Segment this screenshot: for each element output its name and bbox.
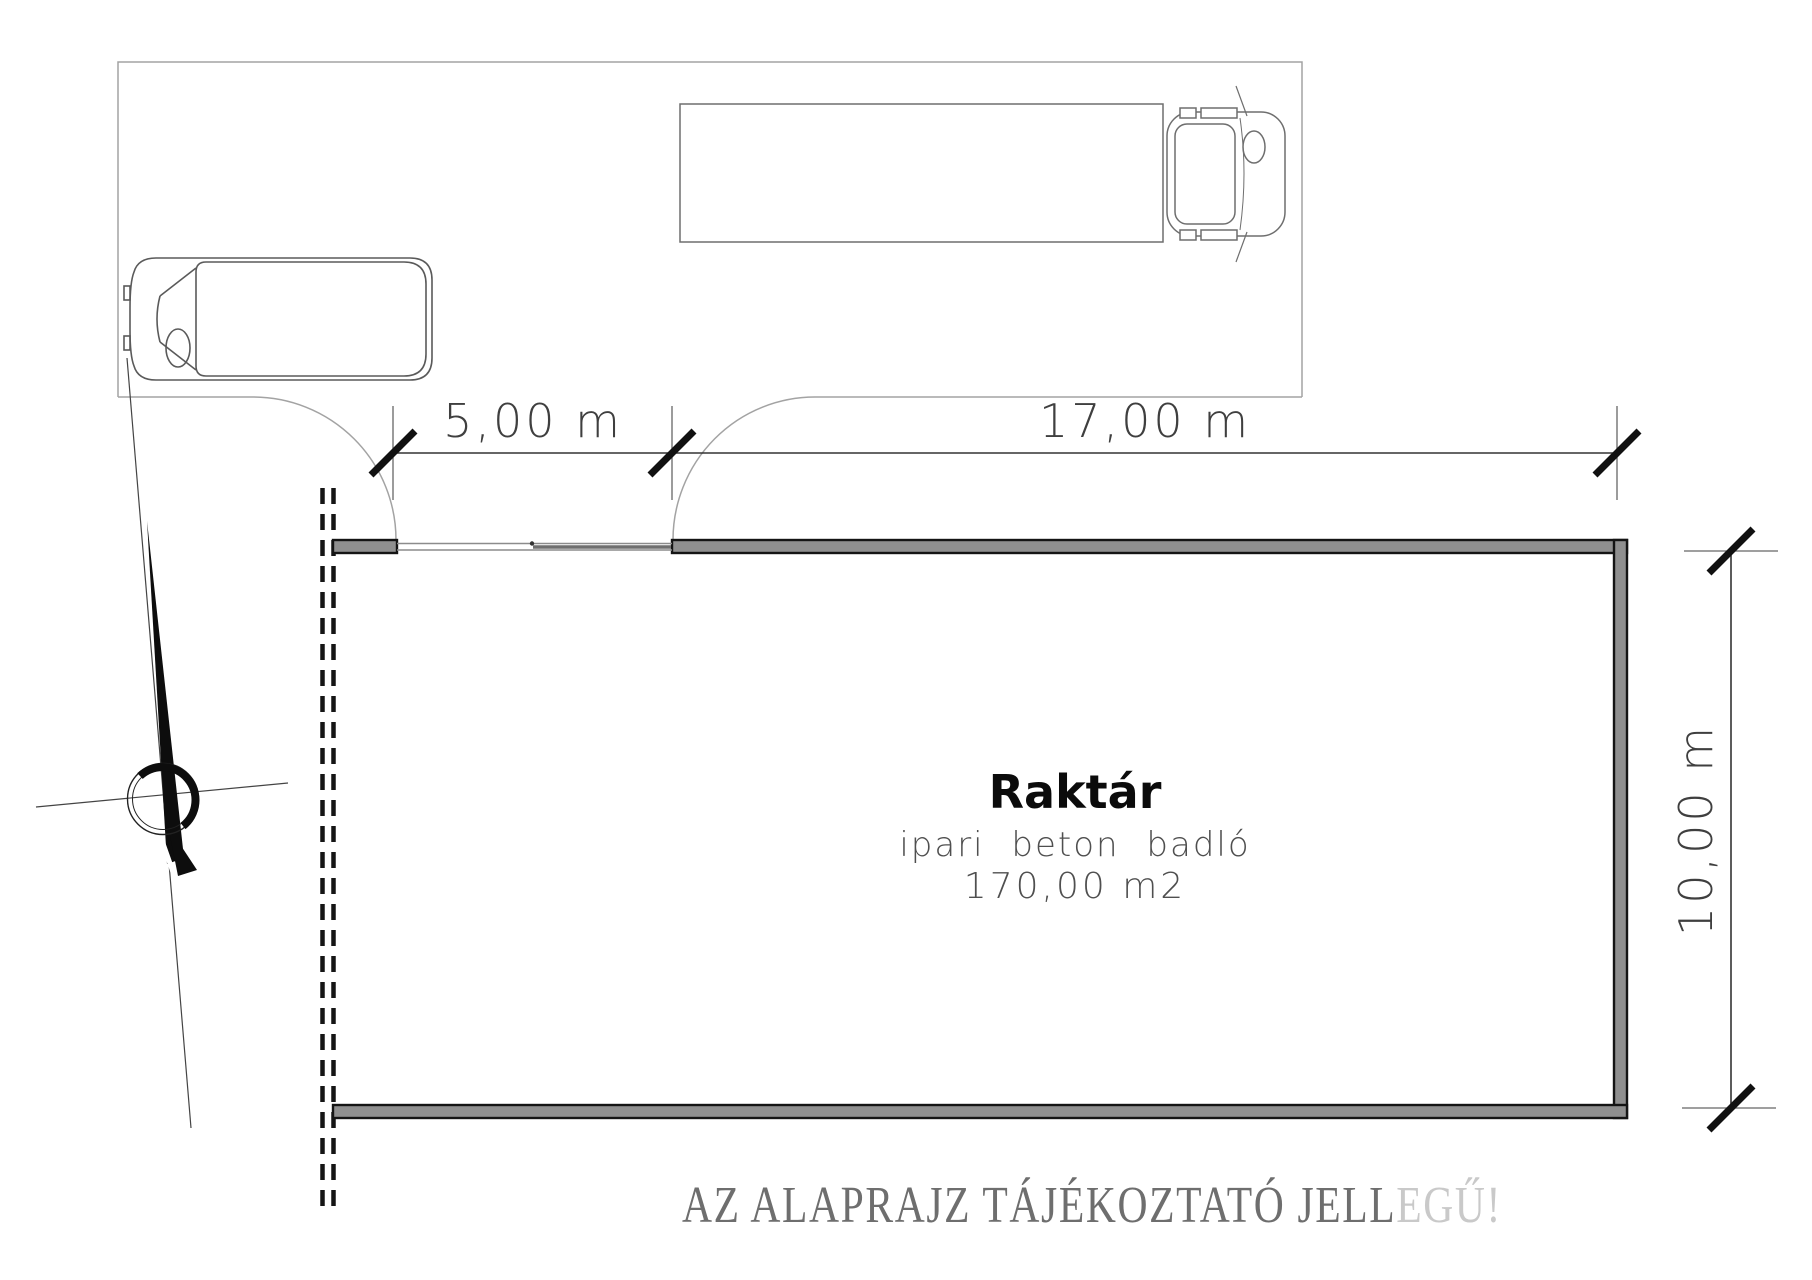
van-bumper-nub-bottom <box>124 336 130 350</box>
dimension-label-hall-depth: 10,00 m <box>1669 724 1723 936</box>
wall-top-left-stub <box>333 540 397 553</box>
truck-cab-body <box>1167 112 1285 236</box>
dimension-label-hall-width: 17,00 m <box>1039 394 1251 448</box>
disclaimer-main-text: AZ ALAPRAJZ TÁJÉKOZTATÓ JELL <box>682 1177 1396 1234</box>
wall-top-main <box>672 540 1627 553</box>
truck-icon <box>680 86 1285 262</box>
room-area-label: 170,00 m2 <box>964 866 1186 907</box>
dimension-extension-lines <box>393 406 1778 1108</box>
room-name-label: Raktár <box>989 765 1162 819</box>
floor-plan-canvas: 5,00 m 17,00 m 10,00 m Raktár ipari beto… <box>0 0 1812 1280</box>
compass-cross-line <box>36 783 288 807</box>
gate-hinge-dot <box>530 541 534 545</box>
disclaimer-text: AZ ALAPRAJZ TÁJÉKOZTATÓ JELLEGŰ! <box>682 1177 1502 1234</box>
north-axis-line <box>127 358 191 1128</box>
wall-right <box>1614 540 1627 1118</box>
drive-path-left-arc <box>118 397 396 540</box>
truck-wheel-bottom-1 <box>1180 230 1196 240</box>
north-needle <box>147 521 184 864</box>
room-floor-note-label: ipari beton badló <box>899 825 1250 865</box>
truck-wheel-top-1 <box>1180 108 1196 118</box>
floor-plan-drawing: 5,00 m 17,00 m 10,00 m Raktár ipari beto… <box>0 0 1812 1280</box>
truck-wheel-bottom-2 <box>1201 230 1237 240</box>
truck-wheel-top-2 <box>1201 108 1237 118</box>
van-icon <box>124 258 432 380</box>
van-body <box>130 258 432 380</box>
truck-trailer <box>680 104 1163 242</box>
disclaimer-note: AZ ALAPRAJZ TÁJÉKOZTATÓ JELLEGŰ! <box>682 1177 1502 1234</box>
dimension-label-gate-width: 5,00 m <box>443 394 623 448</box>
wall-bottom <box>333 1105 1627 1118</box>
van-bumper-nub-top <box>124 286 130 300</box>
north-arrow-icon <box>36 358 288 1128</box>
gate-opening <box>397 541 672 550</box>
disclaimer-faded-text: EGŰ! <box>1396 1177 1502 1234</box>
